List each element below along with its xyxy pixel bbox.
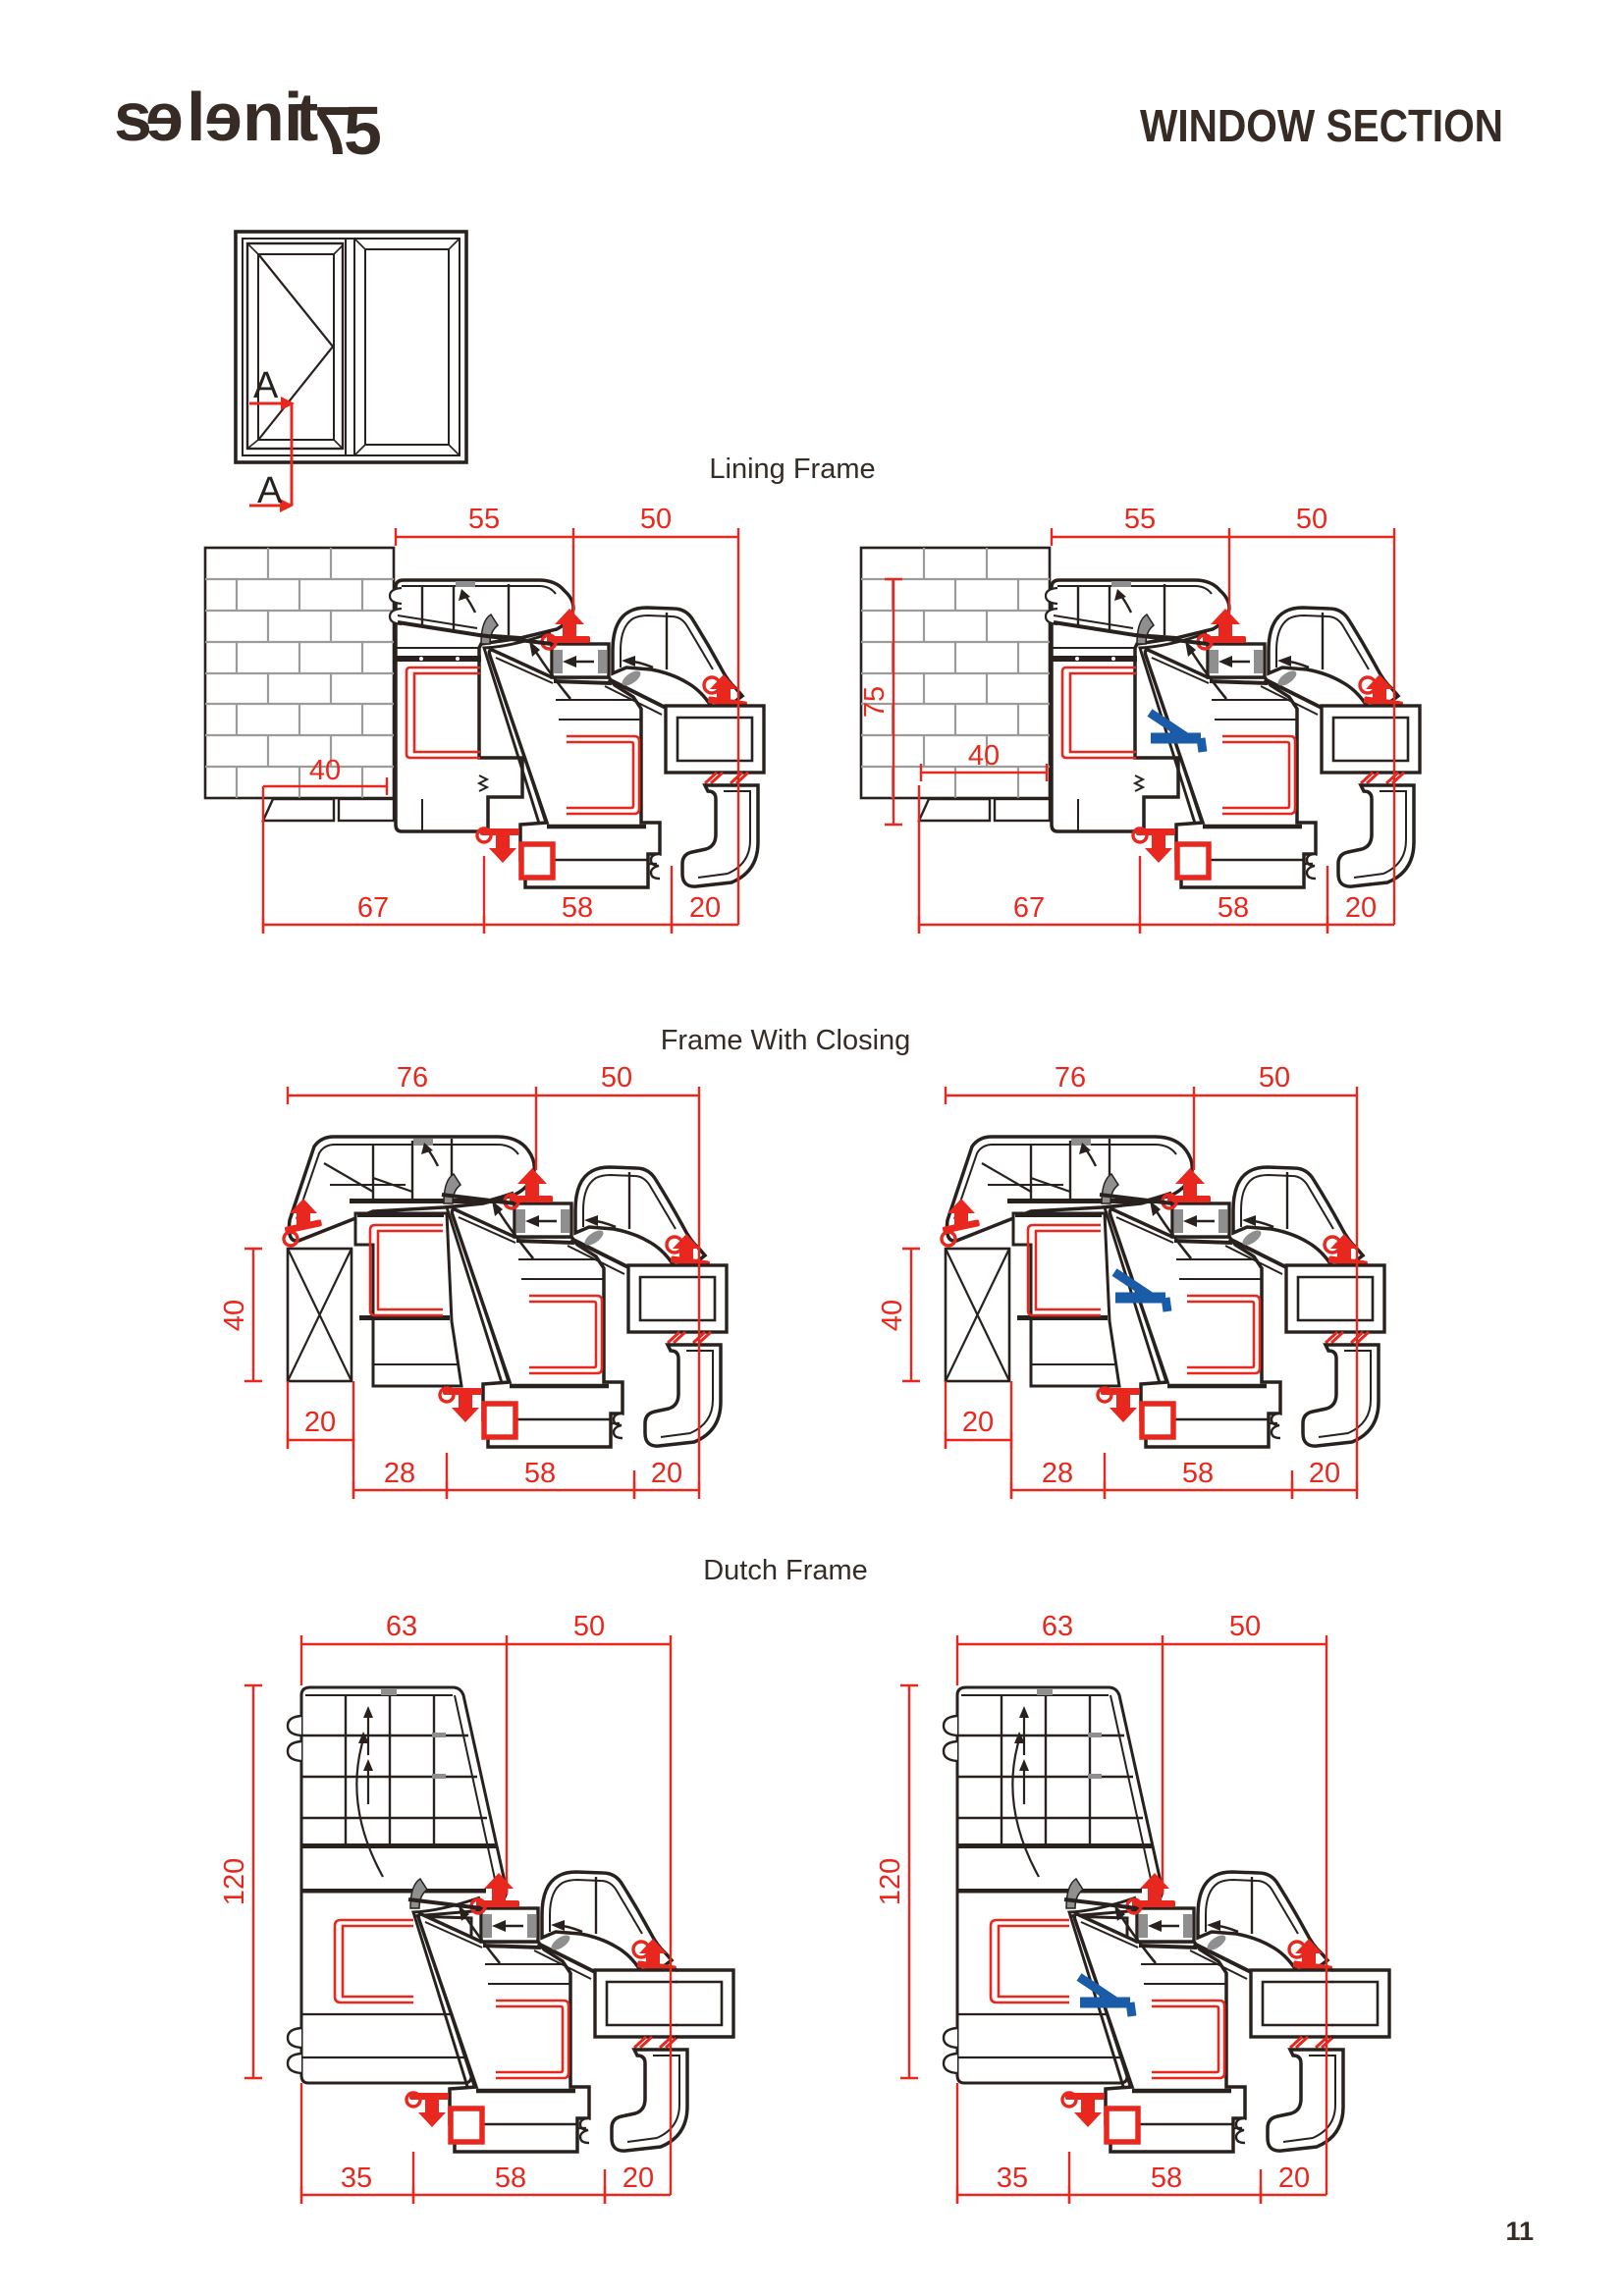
svg-text:WINDOW SECTION: WINDOW SECTION (1140, 100, 1503, 151)
svg-text:76: 76 (397, 1062, 428, 1094)
svg-text:l: l (187, 79, 205, 155)
svg-text:58: 58 (562, 892, 593, 924)
svg-text:Frame With Closing: Frame With Closing (661, 1025, 911, 1056)
svg-text:63: 63 (1042, 1611, 1073, 1642)
svg-text:5: 5 (344, 92, 382, 169)
svg-text:75: 75 (859, 686, 891, 718)
svg-text:76: 76 (1055, 1062, 1086, 1094)
svg-text:20: 20 (962, 1407, 994, 1438)
svg-text:20: 20 (623, 2163, 654, 2194)
svg-text:A: A (253, 365, 279, 406)
svg-text:Lining Frame: Lining Frame (709, 454, 875, 485)
svg-text:63: 63 (386, 1611, 417, 1642)
svg-text:20: 20 (1278, 2163, 1310, 2194)
svg-text:40: 40 (219, 1300, 250, 1331)
svg-text:20: 20 (1309, 1458, 1340, 1489)
svg-text:67: 67 (1013, 892, 1045, 924)
svg-text:40: 40 (968, 740, 1000, 772)
svg-text:35: 35 (341, 2163, 372, 2194)
svg-text:58: 58 (524, 1458, 556, 1489)
svg-text:A: A (257, 470, 283, 511)
svg-text:11: 11 (1505, 2216, 1534, 2246)
svg-text:55: 55 (468, 504, 500, 535)
svg-text:50: 50 (601, 1062, 632, 1094)
svg-text:20: 20 (1345, 892, 1377, 924)
svg-text:50: 50 (1229, 1611, 1261, 1642)
svg-text:20: 20 (651, 1458, 682, 1489)
svg-text:n: n (243, 79, 285, 155)
svg-text:67: 67 (357, 892, 389, 924)
svg-text:Dutch Frame: Dutch Frame (703, 1555, 868, 1586)
svg-text:20: 20 (689, 892, 721, 924)
svg-text:50: 50 (573, 1611, 605, 1642)
svg-text:50: 50 (640, 504, 672, 535)
svg-text:28: 28 (1042, 1458, 1073, 1489)
svg-text:50: 50 (1259, 1062, 1290, 1094)
svg-text:35: 35 (997, 2163, 1028, 2194)
svg-text:20: 20 (304, 1407, 336, 1438)
svg-text:e: e (145, 79, 184, 155)
svg-text:40: 40 (309, 755, 341, 786)
svg-text:58: 58 (1218, 892, 1249, 924)
svg-text:28: 28 (384, 1458, 415, 1489)
svg-text:40: 40 (877, 1300, 908, 1331)
svg-text:58: 58 (1151, 2163, 1182, 2194)
svg-text:120: 120 (219, 1858, 250, 1905)
svg-text:120: 120 (875, 1858, 906, 1905)
svg-text:55: 55 (1124, 504, 1156, 535)
svg-text:58: 58 (495, 2163, 526, 2194)
svg-text:58: 58 (1182, 1458, 1214, 1489)
svg-text:50: 50 (1296, 504, 1327, 535)
svg-text:e: e (204, 79, 243, 155)
